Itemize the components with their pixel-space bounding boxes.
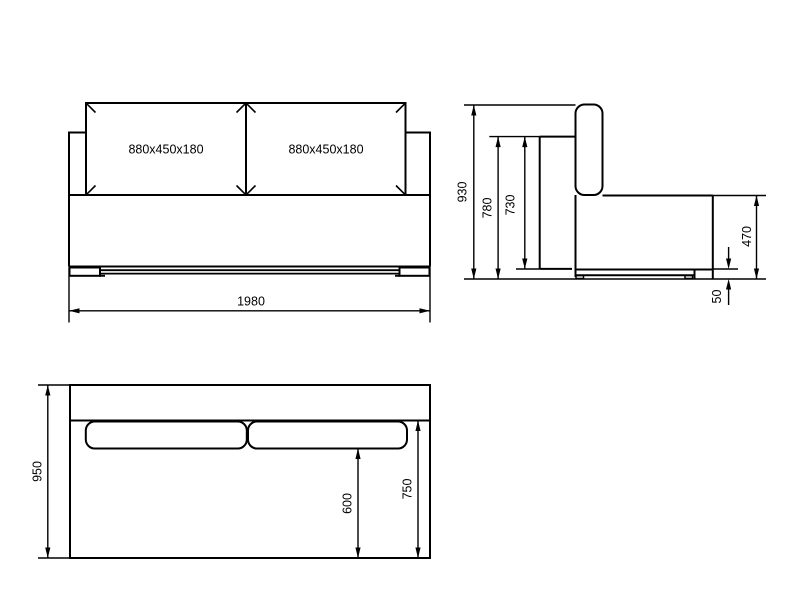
svg-text:470: 470 [740, 226, 754, 247]
svg-text:750: 750 [401, 479, 415, 500]
svg-text:930: 930 [456, 182, 470, 203]
svg-text:50: 50 [710, 290, 724, 304]
svg-text:950: 950 [31, 461, 45, 482]
svg-text:880x450x180: 880x450x180 [128, 143, 203, 157]
svg-text:730: 730 [504, 195, 518, 216]
svg-text:600: 600 [341, 493, 355, 514]
svg-text:1980: 1980 [237, 295, 265, 309]
svg-text:880x450x180: 880x450x180 [288, 143, 363, 157]
svg-text:780: 780 [481, 198, 495, 219]
